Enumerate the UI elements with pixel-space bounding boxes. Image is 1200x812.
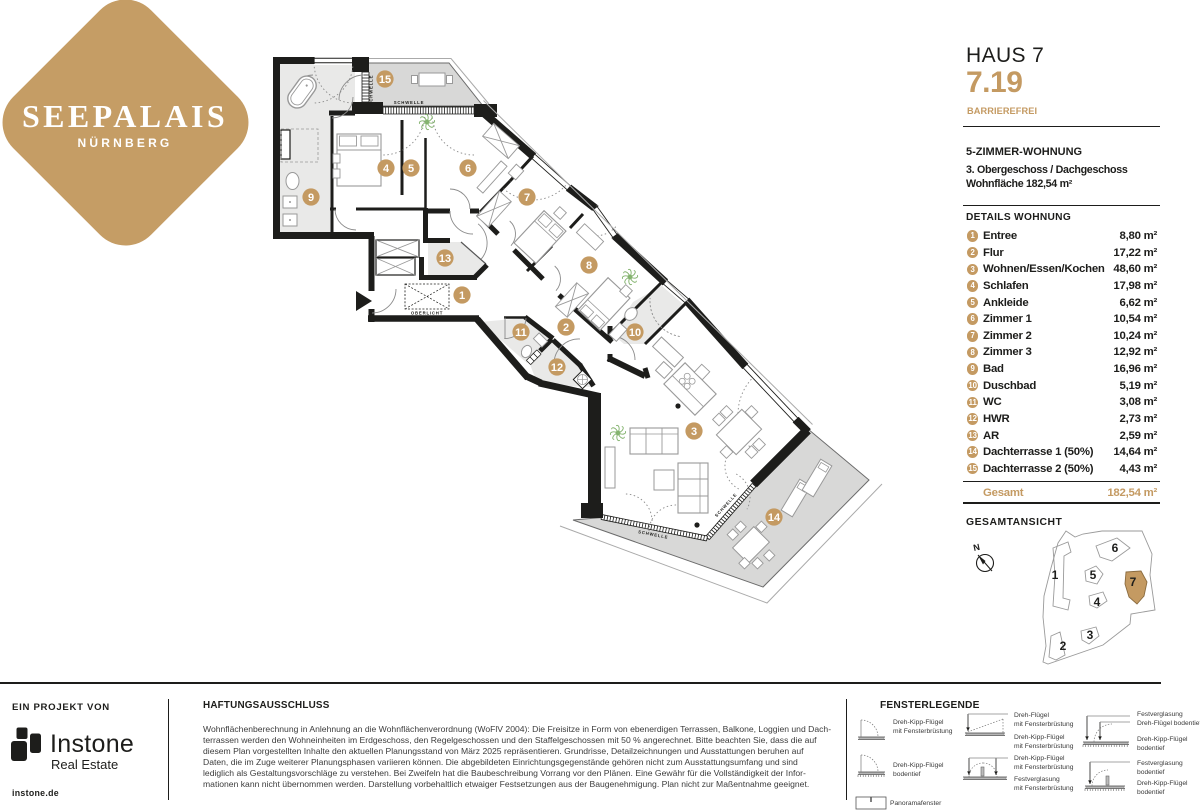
svg-text:6: 6 — [1112, 541, 1119, 555]
svg-text:2: 2 — [1060, 639, 1067, 653]
svg-text:3: 3 — [691, 426, 697, 438]
svg-text:OBERLICHT: OBERLICHT — [411, 311, 443, 316]
svg-text:4: 4 — [383, 163, 390, 175]
svg-text:N: N — [972, 542, 980, 553]
svg-text:1: 1 — [1052, 568, 1059, 582]
svg-text:5: 5 — [408, 163, 414, 175]
svg-text:7: 7 — [1130, 575, 1137, 589]
svg-text:10: 10 — [629, 327, 641, 339]
svg-text:13: 13 — [439, 253, 451, 265]
svg-text:5: 5 — [1090, 568, 1097, 582]
svg-text:8: 8 — [586, 260, 592, 272]
svg-text:14: 14 — [768, 512, 781, 524]
svg-text:7: 7 — [524, 192, 530, 204]
svg-text:6: 6 — [465, 163, 471, 175]
svg-text:4: 4 — [1094, 595, 1101, 609]
svg-text:3: 3 — [1087, 628, 1094, 642]
svg-text:12: 12 — [551, 362, 563, 374]
svg-text:SCHWELLE: SCHWELLE — [394, 100, 425, 105]
svg-text:9: 9 — [308, 192, 314, 204]
svg-text:2: 2 — [563, 322, 569, 334]
svg-text:1: 1 — [459, 290, 465, 302]
svg-text:15: 15 — [379, 74, 391, 86]
svg-text:11: 11 — [515, 327, 527, 339]
